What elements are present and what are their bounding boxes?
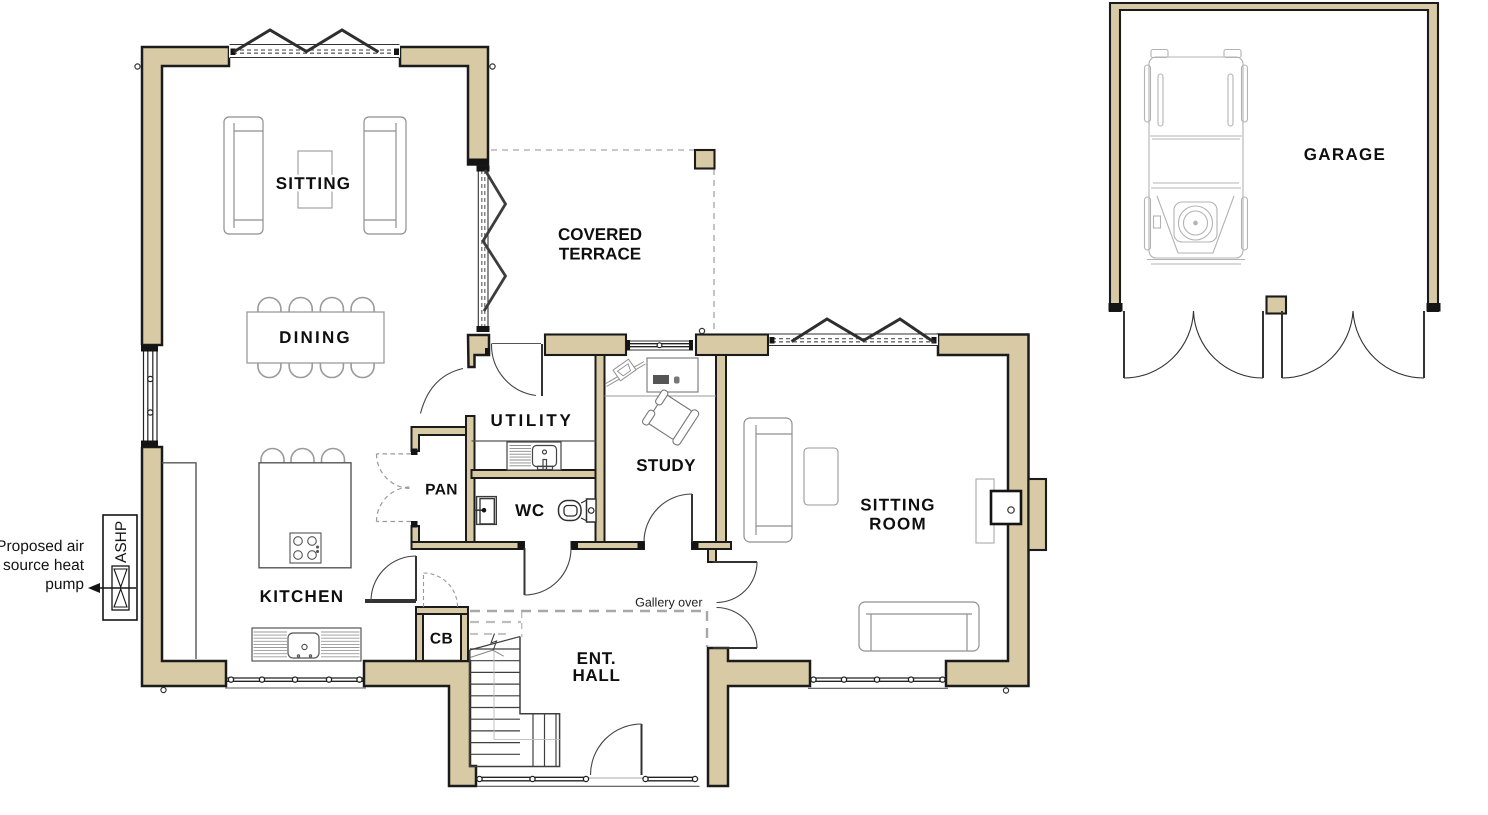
svg-text:KITCHEN: KITCHEN (260, 587, 345, 606)
svg-text:STUDY: STUDY (636, 456, 696, 475)
svg-text:WC: WC (515, 501, 545, 520)
svg-text:DINING: DINING (279, 328, 352, 347)
svg-text:HALL: HALL (572, 666, 620, 685)
svg-text:ROOM: ROOM (869, 515, 927, 534)
svg-text:ASHP: ASHP (113, 521, 130, 563)
svg-text:PAN: PAN (425, 482, 458, 499)
svg-text:TERRACE: TERRACE (559, 245, 641, 264)
svg-text:UTILITY: UTILITY (490, 411, 573, 430)
svg-text:pump: pump (45, 576, 84, 593)
svg-text:Proposed air: Proposed air (0, 538, 84, 555)
svg-text:Gallery over: Gallery over (635, 596, 702, 610)
svg-text:source heat: source heat (3, 557, 85, 574)
svg-text:GARAGE: GARAGE (1304, 145, 1386, 164)
svg-text:SITTING: SITTING (860, 496, 935, 515)
svg-text:COVERED: COVERED (558, 225, 642, 244)
svg-text:CB: CB (430, 631, 453, 648)
svg-text:SITTING: SITTING (276, 174, 351, 193)
